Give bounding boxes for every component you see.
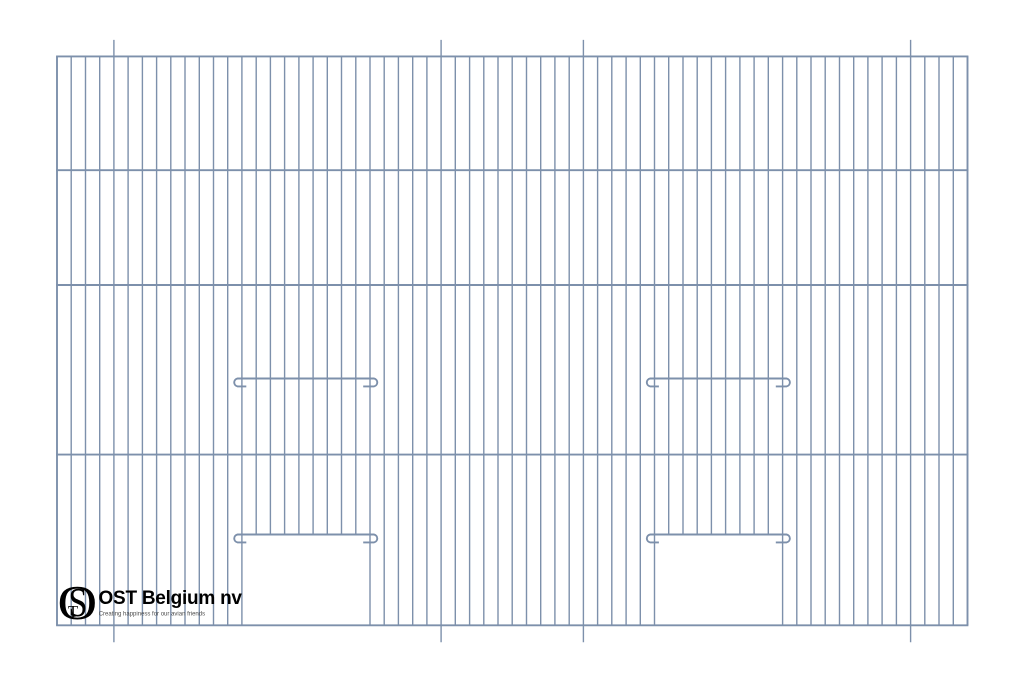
svg-text:T: T: [68, 602, 78, 621]
svg-text:Creating happiness for our avi: Creating happiness for our avian friends: [99, 611, 205, 617]
svg-text:OST Belgium nv: OST Belgium nv: [99, 588, 243, 609]
